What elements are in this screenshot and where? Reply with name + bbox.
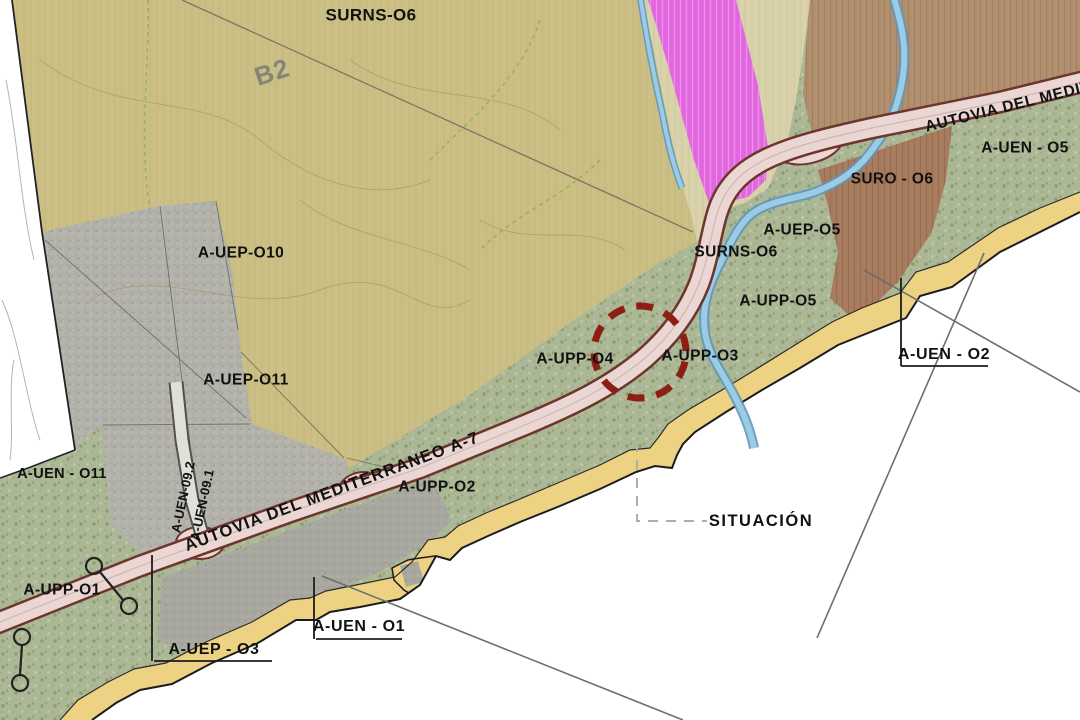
zone-label-a-upp-o3: A-UPP-O3 bbox=[661, 348, 738, 364]
zone-label-suro-o6: SURO - O6 bbox=[851, 171, 934, 187]
callout-label-a-uen-o2: A-UEN - O2 bbox=[898, 347, 990, 363]
zone-label-surns-o6-mid: SURNS-O6 bbox=[694, 244, 777, 260]
callout-label-a-uep-o3: A-UEP - O3 bbox=[168, 642, 259, 658]
zone-label-a-uep-o11: A-UEP-O11 bbox=[203, 372, 288, 388]
zone-label-a-upp-o2: A-UPP-O2 bbox=[398, 479, 475, 495]
zone-label-a-uen-o11: A-UEN - O11 bbox=[17, 467, 107, 482]
zone-label-a-upp-o4: A-UPP-O4 bbox=[536, 351, 613, 367]
zone-label-surns-o6-top: SURNS-O6 bbox=[325, 7, 416, 24]
zone-label-a-uen-o5: A-UEN - O5 bbox=[981, 140, 1069, 156]
zone-label-a-upp-o1: A-UPP-O1 bbox=[23, 582, 100, 598]
callout-label-a-uen-o1: A-UEN - O1 bbox=[313, 619, 405, 635]
callout-label-situacion: SITUACIÓN bbox=[709, 513, 813, 530]
zone-label-a-upp-o5: A-UPP-O5 bbox=[739, 293, 816, 309]
zoning-map: SURNS-O6 B2 AUTOVIA DEL MEDIT SURO - O6 … bbox=[0, 0, 1080, 720]
zone-label-a-uep-o5: A-UEP-O5 bbox=[763, 222, 840, 238]
zone-label-a-uep-o10: A-UEP-O10 bbox=[198, 245, 284, 261]
